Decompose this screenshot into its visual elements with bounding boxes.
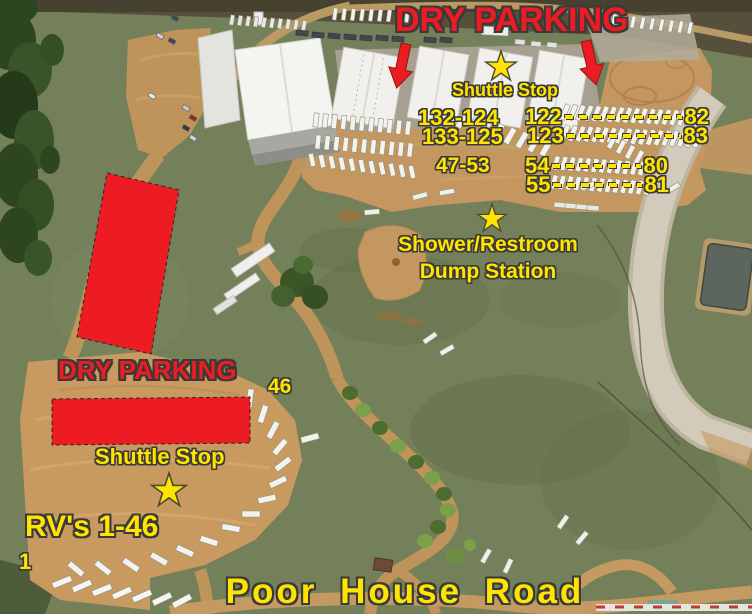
rv-range-label: RV's 1-46 [25,512,158,542]
dry-parking-zone-upper [77,173,179,354]
down-arrow-icon [385,42,418,91]
row-start: 55 [526,172,550,198]
dry-parking-zone-lower [52,397,250,445]
shuttle-stop-star-icon [152,473,186,506]
aerial-map: DRY PARKING Shuttle Stop 132-124 133-125… [0,0,752,614]
facility-line1: Shower/Restroom [398,234,578,255]
down-arrow-icon [574,38,608,87]
parking-row-55-81: 55 81 [526,172,669,198]
dry-parking-label-left: DRY PARKING [58,357,237,383]
shuttle-stop-label-top: Shuttle Stop [452,81,558,99]
dashed-leader-line [567,134,681,138]
facility-label: Shower/Restroom Dump Station [398,234,578,282]
shuttle-stop-label-left: Shuttle Stop [95,446,225,468]
dry-parking-label-top: DRY PARKING [395,3,629,37]
row-label-47-53: 47-53 [436,155,490,176]
shuttle-stop-star-icon [486,51,516,80]
site-46-label: 46 [268,376,291,397]
parking-row-123-83: 123 83 [527,123,708,149]
dashed-leader-line [552,164,640,168]
dashed-leader-line [553,183,641,187]
row-label-133-125: 133-125 [422,126,503,148]
dashed-leader-line [565,115,682,119]
row-end: 83 [684,123,708,149]
road-name-label: Poor House Road [170,574,640,609]
site-1-label: 1 [19,551,31,573]
row-end: 81 [645,172,669,198]
facility-line2: Dump Station [398,261,578,282]
facility-star-icon [478,204,507,231]
row-start: 123 [527,123,564,149]
